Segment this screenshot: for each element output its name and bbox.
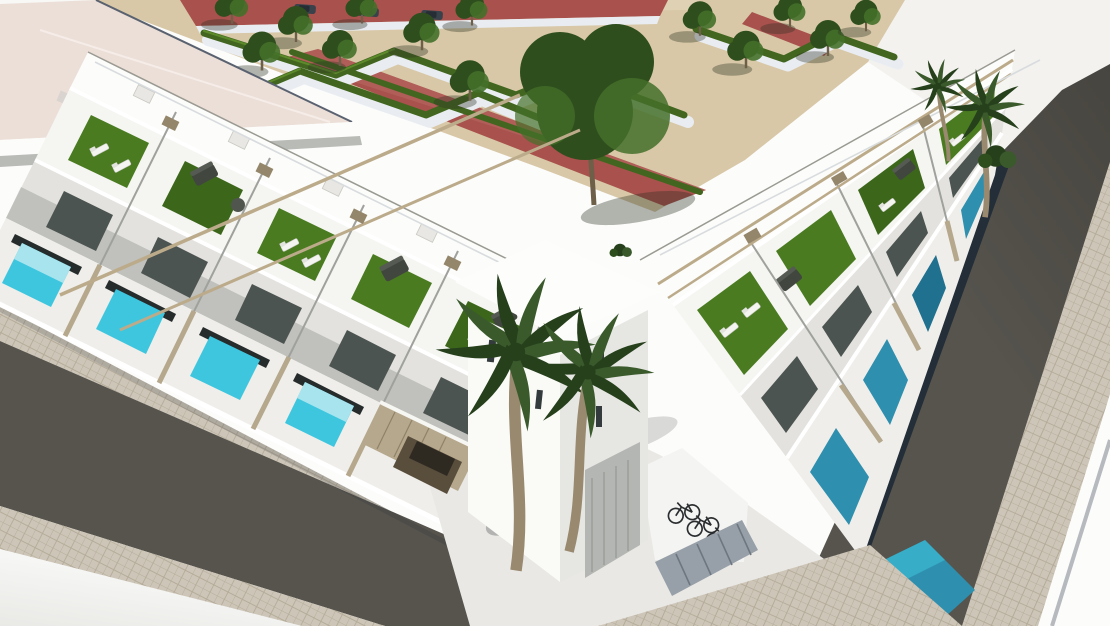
terrace-table (231, 198, 245, 212)
aerial-render: Aerial 3D architectural render: white Me… (0, 0, 1110, 626)
window-slit (596, 406, 602, 427)
render-stage: Aerial 3D architectural render: white Me… (0, 0, 1110, 626)
